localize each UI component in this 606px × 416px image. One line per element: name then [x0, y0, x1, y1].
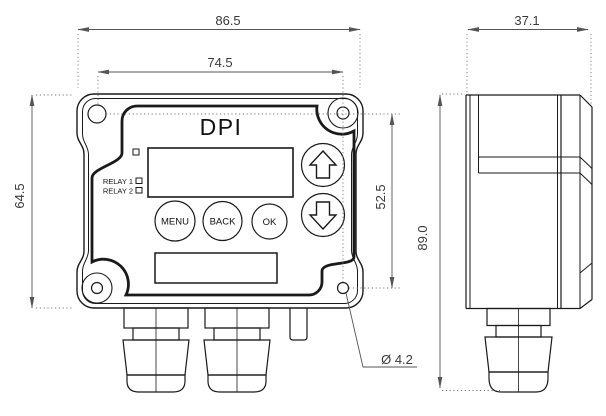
- dim-side-depth: 37.1: [514, 13, 539, 28]
- mounting-hole-bottom-left: [92, 283, 103, 294]
- vent-tube: [290, 308, 307, 340]
- technical-drawing-page: 86.5 74.5 64.5 52.5 37.1 89.0 Ø 4.2 DPI …: [0, 0, 606, 416]
- cable-gland-side: [485, 309, 552, 393]
- dim-overall-width: 86.5: [215, 13, 240, 28]
- mounting-hole-top-left: [88, 105, 106, 123]
- relay1-led: [136, 178, 142, 184]
- label-slot: [155, 253, 277, 283]
- mounting-ear-top-right: [328, 98, 358, 128]
- cable-gland-right: [204, 308, 270, 392]
- status-led: [133, 149, 139, 155]
- up-arrow-icon: [310, 151, 336, 178]
- dim-side-height: 89.0: [415, 225, 430, 250]
- dim-hole-spacing-h: 74.5: [207, 55, 232, 70]
- mounting-hole-top-right: [337, 107, 349, 119]
- down-button-circle: [302, 194, 345, 237]
- cable-gland-left: [123, 308, 189, 392]
- back-button-label: BACK: [210, 217, 237, 228]
- dim-overall-height: 64.5: [12, 183, 27, 208]
- ok-button-label: OK: [263, 217, 277, 228]
- down-arrow-icon: [310, 202, 336, 229]
- side-view: [466, 95, 592, 392]
- mounting-hole-bottom-right: [338, 283, 349, 294]
- dim-hole-diameter: Ø 4.2: [381, 352, 413, 367]
- device-title: DPI: [200, 114, 243, 140]
- lcd-display: [148, 148, 293, 197]
- relay1-label: RELAY 1: [103, 177, 133, 186]
- relay2-label: RELAY 2: [103, 187, 133, 196]
- mounting-ear-bottom-left: [82, 273, 112, 303]
- relay2-led: [136, 188, 142, 194]
- up-button-circle: [302, 144, 345, 187]
- dimension-lines: [32, 30, 588, 389]
- menu-button-label: MENU: [161, 217, 189, 228]
- dim-hole-spacing-v: 52.5: [373, 184, 388, 209]
- dpi-enclosure-drawing: 86.5 74.5 64.5 52.5 37.1 89.0 Ø 4.2 DPI …: [0, 0, 606, 416]
